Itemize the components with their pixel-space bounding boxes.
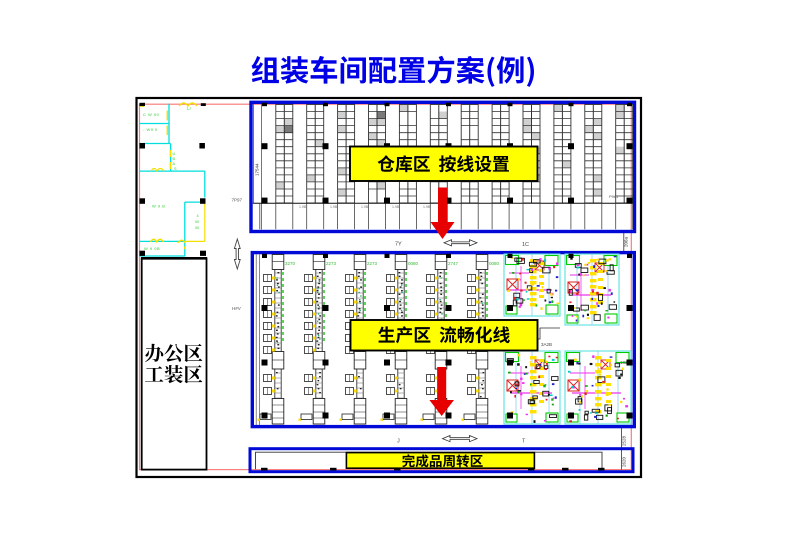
svg-text:2747: 2747 bbox=[448, 261, 459, 266]
svg-text:C W 90: C W 90 bbox=[143, 112, 160, 117]
svg-text:1C: 1C bbox=[522, 242, 529, 248]
svg-text:7P97: 7P97 bbox=[232, 198, 243, 203]
svg-text:P961: P961 bbox=[609, 194, 619, 199]
svg-text:3270: 3270 bbox=[285, 261, 296, 266]
svg-text:1.9B: 1.9B bbox=[392, 205, 400, 209]
svg-text:1.9B: 1.9B bbox=[299, 205, 307, 209]
svg-text:0080: 0080 bbox=[489, 261, 500, 266]
svg-text:2273: 2273 bbox=[326, 261, 337, 266]
svg-text:17544: 17544 bbox=[255, 163, 260, 176]
svg-text:1.9B: 1.9B bbox=[361, 205, 369, 209]
svg-text:7Y: 7Y bbox=[395, 242, 402, 248]
svg-text:1.9B: 1.9B bbox=[330, 205, 338, 209]
svg-text:0080: 0080 bbox=[408, 261, 419, 266]
svg-text:W 9 0B: W 9 0B bbox=[144, 246, 160, 251]
svg-text:U: U bbox=[173, 152, 176, 156]
svg-text:L!: L! bbox=[187, 106, 191, 111]
svg-text:00: 00 bbox=[195, 220, 199, 224]
svg-text:S: S bbox=[174, 167, 177, 171]
svg-text:2273: 2273 bbox=[367, 261, 378, 266]
svg-text:T: T bbox=[522, 439, 526, 445]
svg-text:J: J bbox=[397, 439, 400, 445]
svg-text:2620: 2620 bbox=[622, 456, 627, 467]
svg-text:A: A bbox=[173, 162, 176, 166]
svg-text:4: 4 bbox=[197, 214, 199, 218]
svg-text:H#V: H#V bbox=[232, 306, 241, 311]
svg-text:B: B bbox=[173, 157, 176, 161]
svg-text:206a: 206a bbox=[624, 236, 629, 247]
svg-text:1.9B: 1.9B bbox=[423, 205, 431, 209]
svg-text:3A2B: 3A2B bbox=[541, 342, 552, 347]
svg-text:- W9 0: - W9 0 bbox=[143, 127, 158, 132]
svg-text:W 9.B: W 9.B bbox=[152, 204, 165, 209]
svg-text:2528: 2528 bbox=[622, 435, 627, 446]
svg-text:00: 00 bbox=[195, 226, 199, 230]
